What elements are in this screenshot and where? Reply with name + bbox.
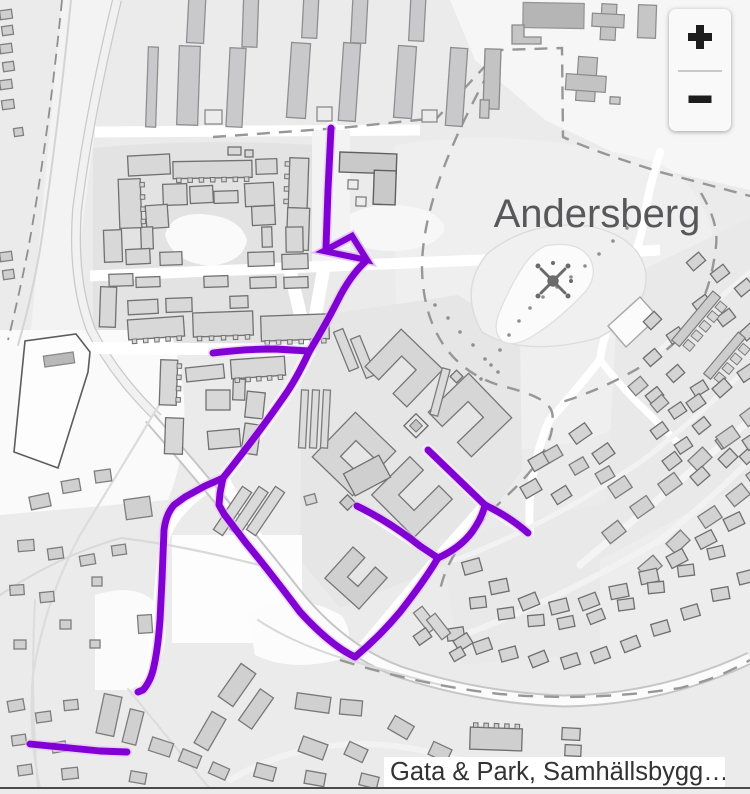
svg-text:Andersberg: Andersberg — [494, 192, 701, 236]
